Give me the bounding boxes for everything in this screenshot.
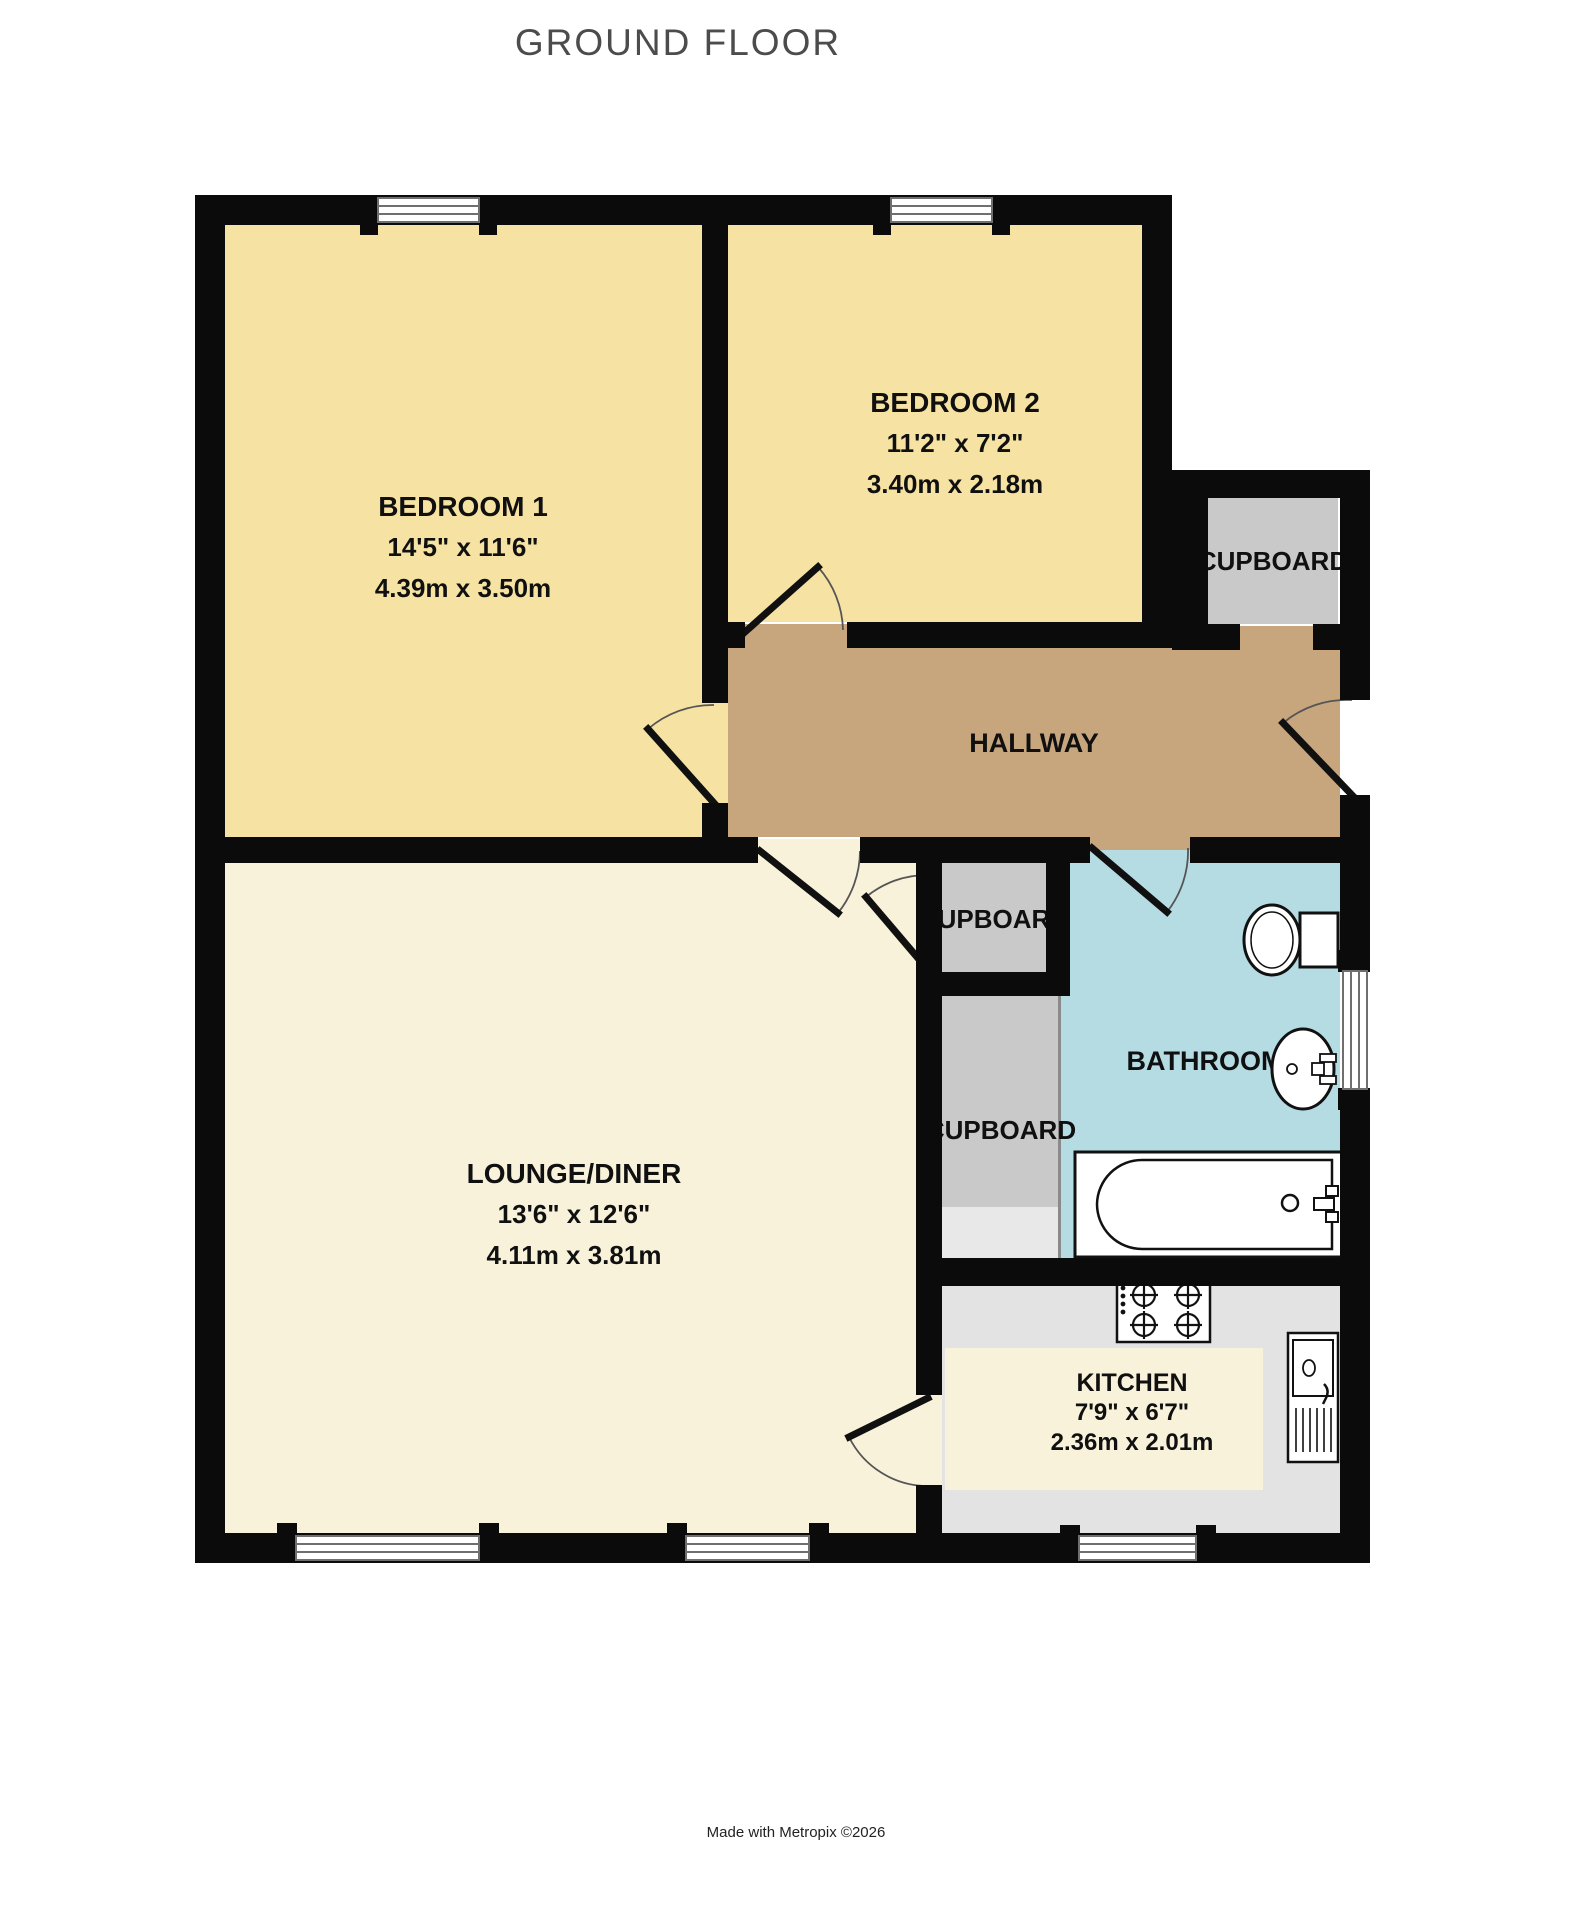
kitchen-sink-icon xyxy=(1288,1333,1338,1462)
wall-lounge-top-a xyxy=(195,837,758,863)
window xyxy=(377,197,480,223)
wall-nub xyxy=(809,1523,829,1563)
wall-cupboard-left xyxy=(916,837,942,1395)
wall-left xyxy=(195,195,225,1563)
wall-nub xyxy=(992,195,1010,235)
wall-right-1 xyxy=(1340,470,1370,700)
wall-right-3 xyxy=(1340,1090,1370,1563)
wall-bedroom1-right-a xyxy=(702,645,728,703)
door-arc xyxy=(648,567,1352,1486)
wall-nub xyxy=(1338,950,1370,972)
window xyxy=(295,1535,480,1561)
wall-nub xyxy=(277,1523,297,1563)
hob-icon xyxy=(1117,1278,1210,1342)
wall-nub xyxy=(1060,1525,1080,1563)
wall-nub xyxy=(479,1523,499,1563)
window xyxy=(890,197,993,223)
wall-nub xyxy=(667,1523,687,1563)
wall-bathroom-top xyxy=(1190,837,1340,863)
toilet-icon xyxy=(1244,905,1338,975)
wall-nub xyxy=(479,195,497,235)
wall-right-upper xyxy=(1142,195,1172,648)
wall-protrusion-top xyxy=(1142,470,1370,498)
bath-icon xyxy=(1075,1152,1342,1257)
wall-bedroom-divider xyxy=(702,225,728,645)
wall-nub xyxy=(360,195,378,235)
wall-lounge-top-b xyxy=(860,837,1090,863)
door-leaf xyxy=(648,567,1352,1437)
wall-nub xyxy=(1338,1088,1370,1110)
fixtures-and-doors-layer xyxy=(0,0,1569,1920)
wall-right-2 xyxy=(1340,795,1370,970)
wall-nub xyxy=(1196,1525,1216,1563)
wall-top xyxy=(195,195,1172,225)
floorplan-canvas: GROUND FLOOR xyxy=(0,0,1569,1920)
wall-bathroom-bottom xyxy=(916,1258,1370,1286)
window xyxy=(685,1535,810,1561)
window xyxy=(1078,1535,1197,1561)
window xyxy=(1342,970,1368,1090)
wall-bedroom1-right-b xyxy=(702,803,728,837)
wall-cupboard-top-bottom-a xyxy=(1172,624,1240,650)
bathroom-sink-icon xyxy=(1272,1029,1336,1109)
wall-bedroom2-bottom-b xyxy=(847,622,1142,648)
wall-nub xyxy=(873,195,891,235)
wall-cupboard-top-bottom-b xyxy=(1313,624,1340,650)
wall-kitchen-left-lower xyxy=(916,1485,942,1563)
wall-cupboard-middle-bottom xyxy=(916,972,1070,996)
